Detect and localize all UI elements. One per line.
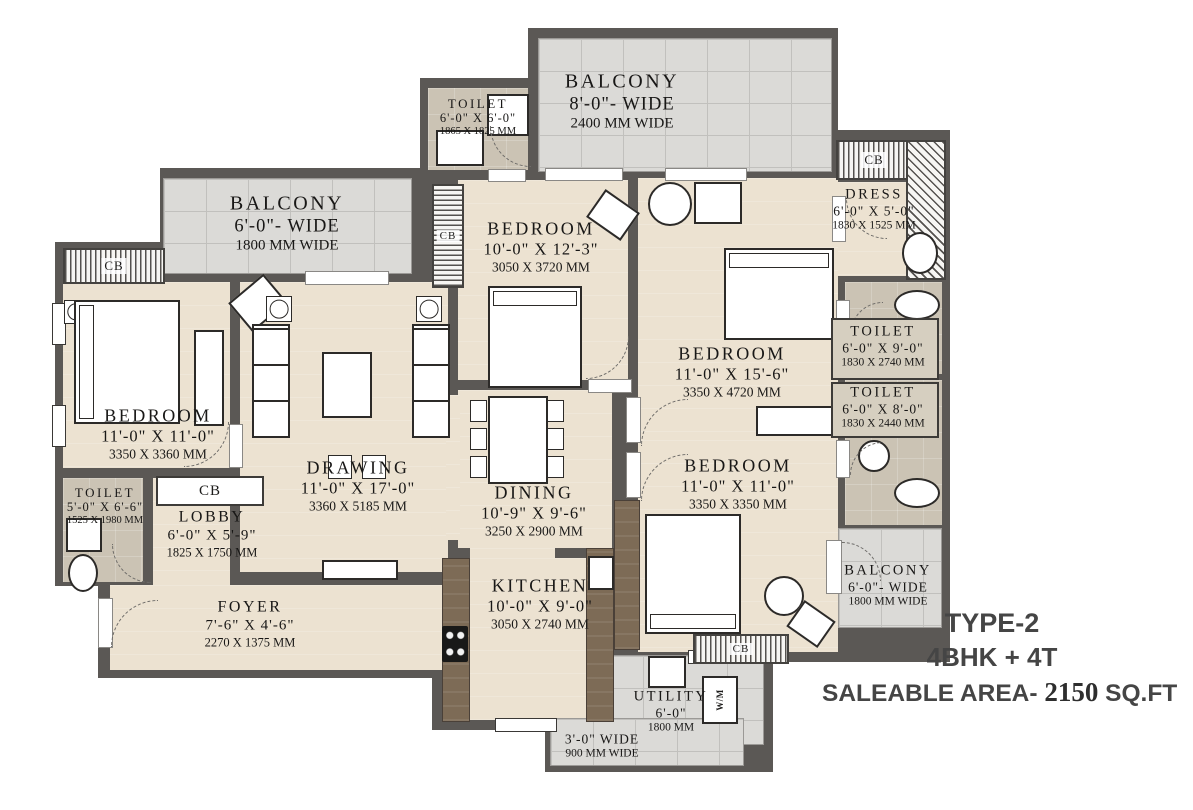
plan-config: 4BHK + 4T [822,641,1162,675]
cb-label: CB [730,643,753,655]
wc-icon [68,554,98,592]
tv-unit-icon [322,560,398,580]
opening-bedroom-bottom-door [626,452,641,498]
armchair-icon [694,182,742,224]
label-bedroom-bottom: BEDROOM 11'-0" X 11'-0" 3350 X 3350 MM [681,456,795,513]
label-kitchen: KITCHEN 10'-0" X 9'-0" 3050 X 2740 MM [487,576,593,633]
opening-balcony-right-door [826,540,842,594]
label-dress: DRESS 6'-0" X 5'-0" 1830 X 1525 MM [832,187,915,234]
sofa-icon [252,324,290,438]
cupboard-lobby: CB [156,476,264,506]
label-utility: UTILITY 6'-0" 1800 MM [634,689,709,736]
fan-icon [416,296,442,322]
label-balcony-right: BALCONY 6'-0"- WIDE 1800 MM WIDE [844,563,932,610]
cupboard-left: CB [63,248,165,284]
wc-icon [894,290,940,320]
cupboard-utility: CB [693,634,789,664]
label-toilet-left: TOILET 5'-0" X 6'-6" 1525 X 1980 MM [67,485,143,527]
window-bedroom-left-2 [52,405,66,447]
label-foyer: FOYER 7'-6" X 4'-6" 2270 X 1375 MM [205,598,296,649]
wm-label: W/M [715,689,725,711]
bed-icon [645,514,741,634]
label-balcony-top: BALCONY 8'-0"- WIDE 2400 MM WIDE [565,70,679,133]
stove-icon [442,626,468,662]
opening-balcony-top-door [545,168,623,181]
cupboard-dress-top: CB [836,140,912,180]
label-toilet-right-1: TOILET 6'-0" X 9'-0" 1830 X 2740 MM [841,324,924,371]
label-toilet-top: TOILET 6'-0" X 6'-0" 1865 X 1825 MM [440,96,516,138]
label-bedroom-top: BEDROOM 10'-0" X 12'-3" 3050 X 3720 MM [483,219,598,276]
utility-sink-icon [648,656,686,688]
label-passage-bottom: 3'-0" WIDE 900 MM WIDE [565,731,639,760]
fan-icon [266,296,292,322]
area-value: 2150 [1044,677,1098,707]
dining-chair-icon [470,400,487,422]
opening-bedroom-left-door [229,424,243,468]
title-block: TYPE-2 4BHK + 4T SALEABLE AREA- 2150 SQ.… [822,606,1162,710]
bed-icon [488,286,582,388]
dining-chair-icon [547,428,564,450]
opening-toilet2-door [836,440,850,478]
dining-chair-icon [470,456,487,478]
sink-icon [902,232,938,274]
opening-balcony-left-door [305,271,389,285]
opening-bedroom-top-door [588,379,632,393]
opening-toilet-top-door [488,169,526,182]
cb-label: CB [437,230,460,242]
label-bedroom-right: BEDROOM 11'-0" X 15'-6" 3350 X 4720 MM [675,344,789,401]
label-toilet-right-2: TOILET 6'-0" X 8'-0" 1830 X 2440 MM [841,385,924,432]
label-dining: DINING 10'-9" X 9'-6" 3250 X 2900 MM [481,483,587,540]
coffee-table-icon [322,352,372,418]
label-drawing: DRAWING 11'-0" X 17'-0" 3360 X 5185 MM [301,458,415,515]
dining-chair-icon [547,400,564,422]
bed-icon [724,248,834,340]
round-table-icon [648,182,692,226]
cb-label: CB [199,483,221,499]
dining-chair-icon [470,428,487,450]
saleable-area: SALEABLE AREA- 2150 SQ.FT [822,675,1162,710]
dining-table-icon [488,396,548,484]
floor-plan: CB CB CB CB CB W/M [0,0,1193,810]
dining-chair-icon [547,456,564,478]
wardrobe-bedroom-bottom [614,500,640,650]
window-kitchen [495,718,557,732]
opening-bedroom-right-top [665,168,747,181]
opening-bedroom-right-door [626,397,641,443]
sofa-icon [412,324,450,438]
cupboard-bedroom-top: CB [432,184,464,288]
cb-label: CB [101,258,126,274]
wc-icon [894,478,940,508]
label-balcony-left: BALCONY 6'-0"- WIDE 1800 MM WIDE [230,192,344,255]
label-lobby: LOBBY 6'-0" X 5'-9" 1825 X 1750 MM [167,508,258,559]
plan-type: TYPE-2 [822,606,1162,641]
dresser-icon [756,406,834,436]
cb-label: CB [861,152,886,168]
label-bedroom-left: BEDROOM 11'-0" X 11'-0" 3350 X 3360 MM [101,406,215,463]
